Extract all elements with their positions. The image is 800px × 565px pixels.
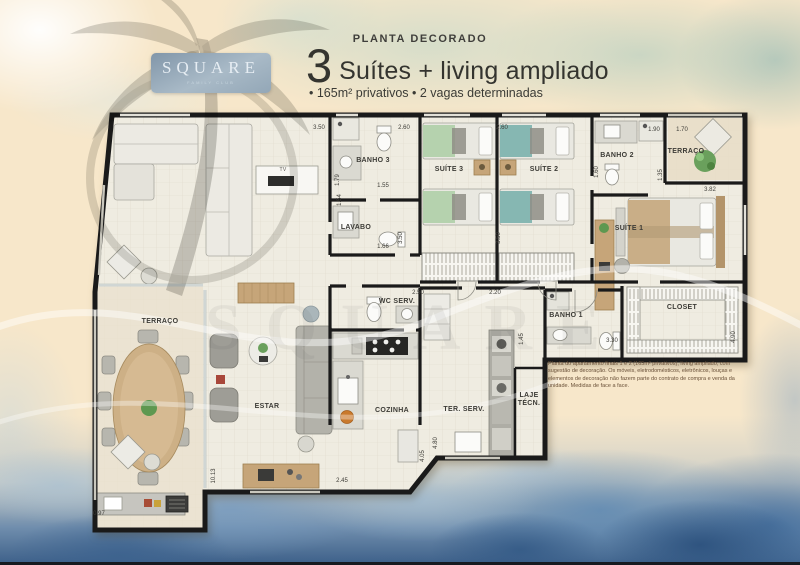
tv-panel [256, 166, 318, 194]
desk-chair [615, 259, 630, 274]
legal-disclaimer: Planta do apartamento finais 1 e 2 (165m… [548, 361, 745, 390]
toilet [600, 333, 613, 350]
suite1-bed [616, 196, 725, 268]
sink [402, 309, 413, 320]
sink [604, 125, 620, 138]
logo-badge: SQUARE FAMILY CLUB [151, 53, 271, 93]
plant [599, 223, 609, 233]
tv-screen [268, 176, 294, 186]
island-counter [243, 464, 319, 488]
plan-features: • 165m² privativos • 2 vagas determinada… [309, 86, 543, 100]
toilet [379, 232, 397, 246]
toilet [606, 169, 619, 185]
logo-brand: SQUARE [151, 58, 271, 78]
plant-centerpiece [141, 400, 157, 416]
cooktop [366, 337, 408, 355]
toilet [377, 133, 391, 151]
kitchen-sink [338, 378, 358, 404]
sink [338, 212, 353, 230]
sink [553, 330, 567, 341]
logo-tagline: FAMILY CLUB [151, 80, 271, 85]
bar-counter [97, 493, 188, 515]
brochure-page: SQUARE SQUARE FAMILY CLUB PLANTA DECORAD… [0, 0, 800, 565]
oven-tower [398, 430, 418, 462]
bench [616, 208, 625, 256]
shower [333, 118, 359, 140]
red-cushion [216, 375, 225, 384]
laundry-sink [455, 432, 481, 452]
sideboard [238, 283, 294, 303]
floor-lamp [303, 306, 319, 322]
plan-title-row: 3 Suítes + living ampliado [306, 44, 609, 87]
toilet [367, 303, 381, 322]
plan-title: Suítes + living ampliado [339, 57, 609, 86]
fruit-bowl [341, 411, 354, 424]
headboard [716, 196, 725, 268]
coffee-table [249, 337, 277, 365]
shower [639, 121, 663, 141]
washer [497, 339, 507, 349]
suite-count: 3 [306, 44, 332, 87]
sofa-main [296, 306, 332, 452]
sink [340, 156, 352, 168]
